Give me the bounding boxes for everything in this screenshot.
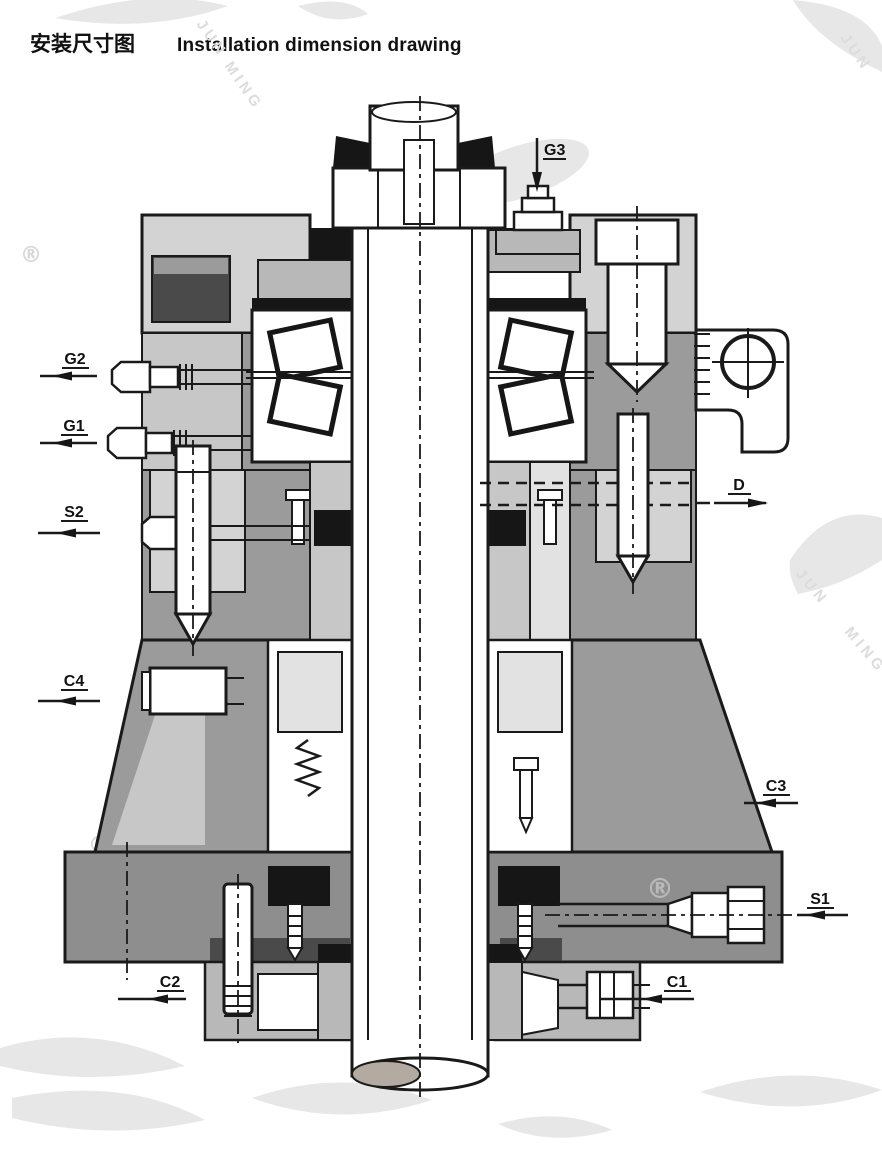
center-stud <box>404 140 434 224</box>
small-bolt-head <box>514 758 538 770</box>
top-seal-left <box>310 228 352 262</box>
port-label-g1-text: G1 <box>63 418 84 435</box>
watermark-text-jun: JUN <box>193 17 231 61</box>
bearing-left <box>246 298 364 462</box>
port-label-d: D <box>714 477 768 508</box>
mounting-bracket <box>696 330 788 452</box>
port-label-s1-text: S1 <box>810 891 830 908</box>
watermark-swoosh <box>0 1037 185 1077</box>
taper-roller-upper <box>501 320 572 380</box>
cartridge-right-insert <box>498 652 562 732</box>
shaft-bottom-shaded-half <box>352 1061 420 1087</box>
watermark-swoosh <box>700 1075 882 1106</box>
installation-drawing-canvas: JUN MING JUN ® ® JUN MING <box>0 0 882 1149</box>
port-label-c4: C4 <box>38 673 100 706</box>
bearing-right <box>476 298 594 462</box>
small-bolt <box>292 498 304 544</box>
small-bolt-head <box>286 490 310 500</box>
seal-ring-left <box>314 510 352 546</box>
small-bolt <box>520 768 532 818</box>
shaft <box>333 96 505 1102</box>
port-label-c3-text: C3 <box>766 778 787 795</box>
bottom-center-sleeve-left <box>318 962 352 1040</box>
right-cavity-panel <box>530 462 570 640</box>
shaft-top-ellipse <box>372 102 456 122</box>
cartridge-left-insert <box>278 652 342 732</box>
bottom-center-sleeve-right <box>488 962 522 1040</box>
taper-roller-lower <box>501 374 572 434</box>
bottom-seal-right <box>488 944 522 962</box>
right-trapezoid-flank <box>570 640 772 852</box>
small-bolt-head <box>538 490 562 500</box>
port-label-s1: S1 <box>797 891 848 920</box>
port-label-c4-text: C4 <box>64 673 85 690</box>
seal-ring-right <box>488 510 526 546</box>
taper-roller-lower <box>270 374 341 434</box>
watermark-registered: ® <box>20 243 42 268</box>
watermark-swoosh <box>498 1116 612 1137</box>
top-step-left <box>258 260 352 302</box>
base-seal-left <box>268 866 330 906</box>
taper-roller-upper <box>270 320 341 380</box>
port-label-g1: G1 <box>40 418 97 448</box>
port-label-g2-text: G2 <box>64 351 85 368</box>
page: 安装尺寸图 Installation dimension drawing JUN… <box>0 0 882 1149</box>
left-cap-plug-top <box>154 258 228 274</box>
port-label-c1-text: C1 <box>667 974 688 991</box>
small-stud-right <box>518 904 532 960</box>
base-seal-right <box>498 866 560 906</box>
port-label-g3-text: G3 <box>544 142 565 159</box>
watermark-swoosh <box>12 1091 205 1131</box>
port-label-s2-text: S2 <box>64 504 84 521</box>
port-label-c2: C2 <box>118 974 186 1004</box>
port-label-c2-text: C2 <box>160 974 181 991</box>
watermark-text-ming: MING <box>841 624 882 677</box>
port-label-d-text: D <box>733 477 745 494</box>
small-stud-left <box>288 904 302 960</box>
left-sleeve <box>310 462 352 640</box>
bottom-seal-left <box>318 944 352 962</box>
watermark-swoosh <box>298 2 368 20</box>
port-label-g2: G2 <box>40 351 97 381</box>
port-label-s2: S2 <box>38 504 100 538</box>
top-wedge-seal-right <box>458 136 495 168</box>
top-wedge-seal-left <box>333 136 370 168</box>
watermark-registered-on-flange: ® <box>646 872 674 905</box>
watermark-text-ming: MING <box>221 59 267 114</box>
right-sleeve <box>488 462 530 640</box>
